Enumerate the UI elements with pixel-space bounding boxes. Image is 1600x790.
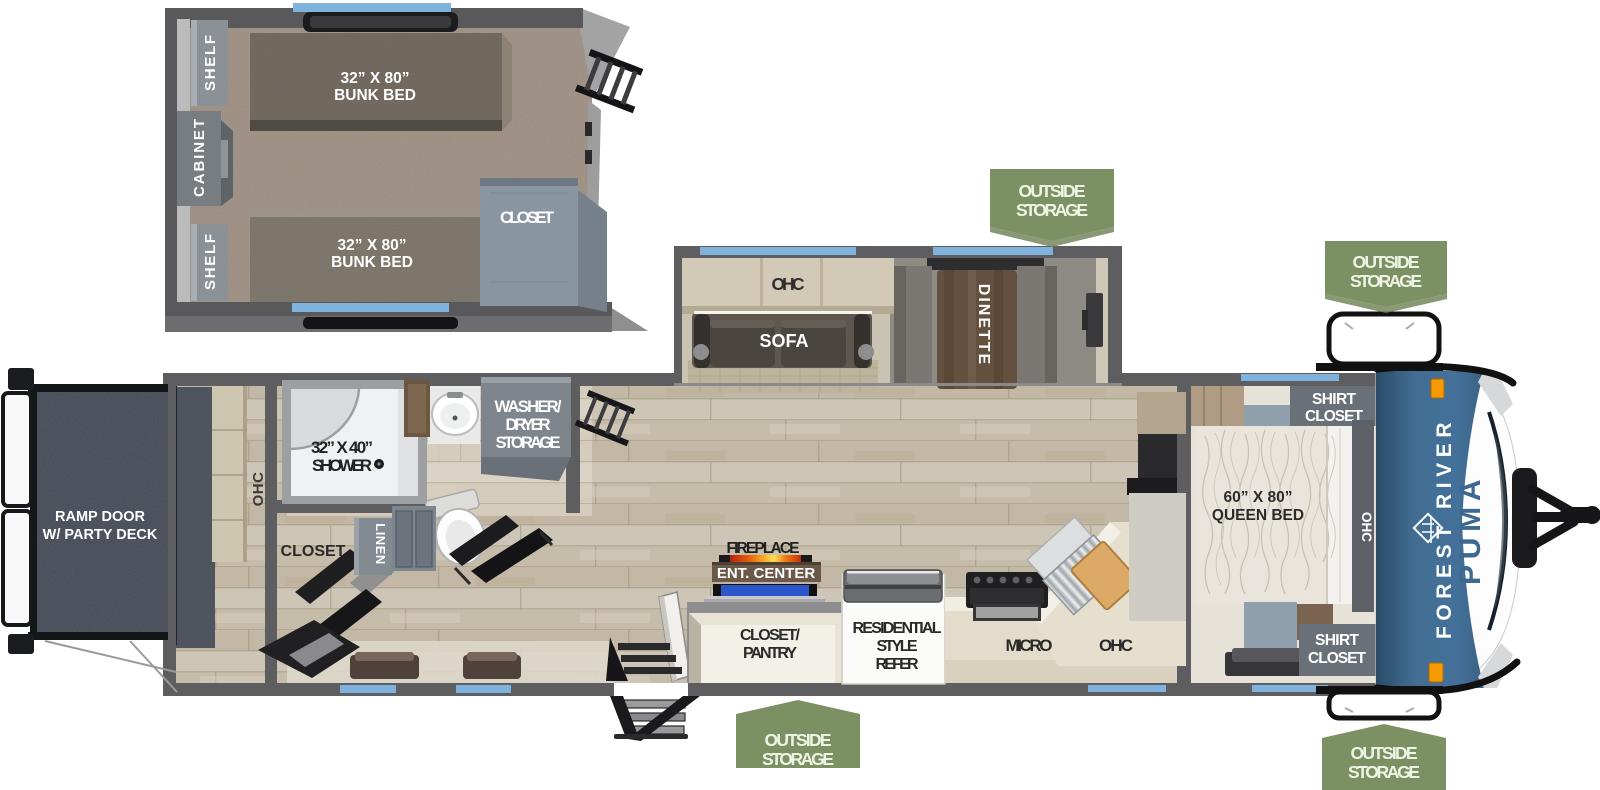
svg-text:CLOSET/: CLOSET/ [740, 627, 801, 644]
svg-text:PANTRY: PANTRY [743, 645, 797, 662]
svg-text:STORAGE: STORAGE [496, 434, 561, 452]
svg-text:W/ PARTY DECK: W/ PARTY DECK [43, 527, 158, 543]
svg-text:STORAGE: STORAGE [1348, 762, 1420, 782]
svg-text:QUEEN BED: QUEEN BED [1212, 507, 1304, 524]
svg-text:STORAGE: STORAGE [1350, 271, 1422, 291]
svg-text:STORAGE: STORAGE [1016, 200, 1088, 220]
svg-text:32” X 80”: 32” X 80” [338, 237, 407, 254]
svg-text:CLOSET: CLOSET [281, 543, 346, 560]
svg-text:BUNK BED: BUNK BED [331, 254, 413, 271]
svg-text:32” X 40”: 32” X 40” [311, 438, 373, 457]
svg-text:ENT. CENTER: ENT. CENTER [717, 565, 816, 582]
svg-text:OHC: OHC [772, 274, 805, 294]
svg-text:OUTSIDE: OUTSIDE [1019, 181, 1086, 201]
svg-text:SHELF: SHELF [202, 234, 219, 290]
svg-text:OHC: OHC [1099, 636, 1133, 655]
svg-text:OUTSIDE: OUTSIDE [1351, 743, 1418, 763]
svg-text:CLOSET: CLOSET [500, 208, 555, 227]
svg-text:OUTSIDE: OUTSIDE [1353, 252, 1420, 272]
svg-text:BUNK BED: BUNK BED [334, 87, 416, 104]
svg-text:FOREST RIVER: FOREST RIVER [1433, 421, 1456, 639]
svg-text:SHIRT: SHIRT [1312, 391, 1357, 408]
svg-text:SHIRT: SHIRT [1315, 632, 1360, 649]
svg-text:RESIDENTIAL: RESIDENTIAL [853, 620, 942, 637]
svg-text:DINETTE: DINETTE [975, 284, 992, 366]
svg-text:SHELF: SHELF [202, 35, 219, 91]
svg-text:OHC: OHC [250, 472, 267, 507]
svg-text:SHOWER: SHOWER [312, 456, 372, 475]
svg-text:STYLE: STYLE [877, 638, 918, 655]
svg-text:OUTSIDE: OUTSIDE [765, 730, 832, 750]
svg-text:60” X 80”: 60” X 80” [1224, 489, 1293, 506]
svg-text:PUMA: PUMA [1454, 477, 1487, 585]
svg-text:DRYER: DRYER [506, 416, 551, 434]
svg-text:OHC: OHC [1359, 512, 1374, 542]
svg-text:STORAGE: STORAGE [762, 749, 834, 769]
svg-text:MICRO: MICRO [1006, 636, 1053, 655]
svg-text:32” X 80”: 32” X 80” [341, 70, 410, 87]
svg-text:CLOSET: CLOSET [1308, 650, 1367, 667]
svg-text:RAMP DOOR: RAMP DOOR [55, 509, 145, 525]
svg-text:FIREPLACE: FIREPLACE [727, 540, 800, 557]
svg-text:WASHER/: WASHER/ [495, 398, 562, 416]
svg-text:LINEN: LINEN [373, 523, 388, 565]
svg-text:SOFA: SOFA [759, 331, 808, 351]
svg-text:REFER: REFER [876, 656, 919, 673]
